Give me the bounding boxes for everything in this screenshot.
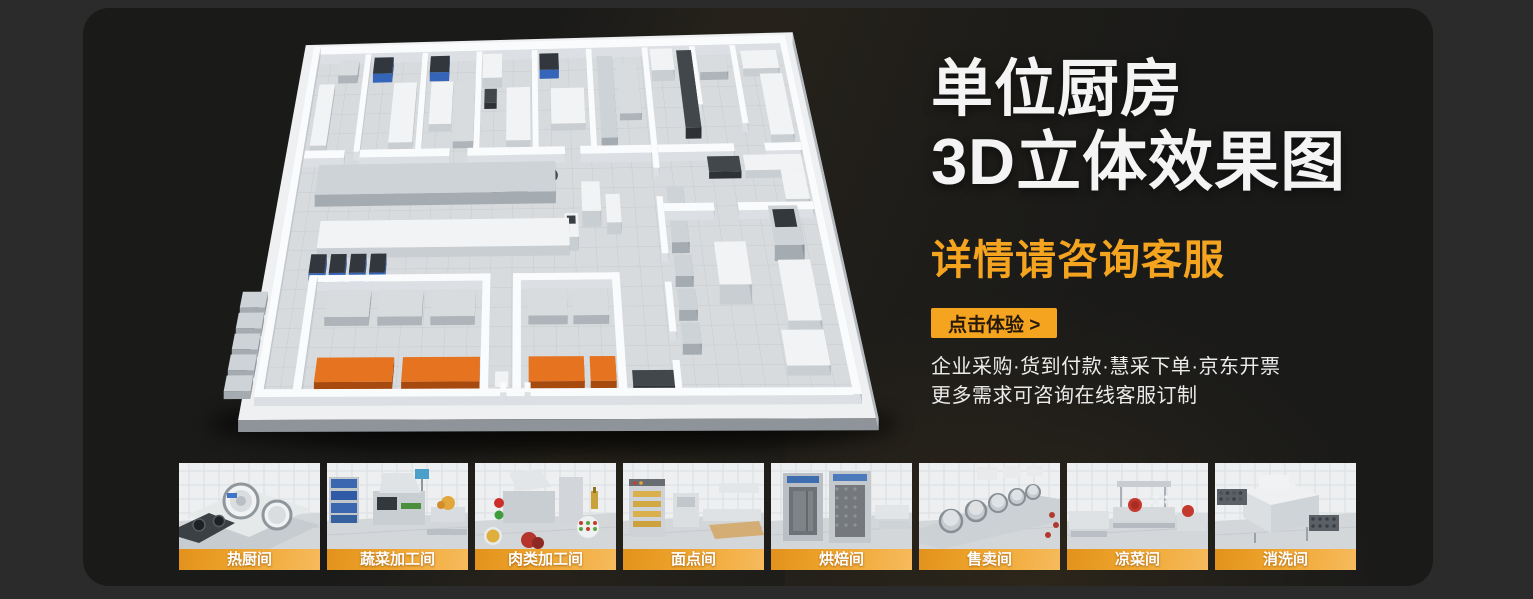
gallery-item-label: 售卖间 bbox=[919, 549, 1060, 570]
gallery-item-label: 烘焙间 bbox=[771, 549, 912, 570]
gallery-item-6[interactable]: 售卖间 bbox=[919, 463, 1060, 570]
gallery-item-label: 消洗间 bbox=[1215, 549, 1356, 570]
hero-note-line2: 更多需求可咨询在线客服订制 bbox=[931, 384, 1411, 408]
hero-text-block: 单位厨房 3D立体效果图 详情请咨询客服 点击体验 > 企业采购·货到付款·慧采… bbox=[931, 54, 1411, 408]
cta-button[interactable]: 点击体验 > bbox=[931, 308, 1057, 338]
gallery-item-label: 肉类加工间 bbox=[475, 549, 616, 570]
hero-title-line2: 3D立体效果图 bbox=[931, 126, 1411, 198]
room-gallery: 热厨间蔬菜加工间肉类加工间面点间烘焙间售卖间凉菜间消洗间 bbox=[179, 463, 1433, 570]
meat-processing-thumbnail bbox=[475, 463, 616, 549]
gallery-item-1[interactable]: 热厨间 bbox=[179, 463, 320, 570]
baking-room-thumbnail bbox=[771, 463, 912, 549]
banner-panel: 单位厨房 3D立体效果图 详情请咨询客服 点击体验 > 企业采购·货到付款·慧采… bbox=[83, 8, 1433, 586]
hero-title-line1: 单位厨房 bbox=[931, 54, 1411, 126]
serving-room-thumbnail bbox=[919, 463, 1060, 549]
page-background: 单位厨房 3D立体效果图 详情请咨询客服 点击体验 > 企业采购·货到付款·慧采… bbox=[0, 0, 1533, 599]
gallery-item-label: 蔬菜加工间 bbox=[327, 549, 468, 570]
gallery-item-label: 凉菜间 bbox=[1067, 549, 1208, 570]
gallery-item-label: 热厨间 bbox=[179, 549, 320, 570]
gallery-item-5[interactable]: 烘焙间 bbox=[771, 463, 912, 570]
gallery-item-8[interactable]: 消洗间 bbox=[1215, 463, 1356, 570]
pastry-room-thumbnail bbox=[623, 463, 764, 549]
hero-subtitle: 详情请咨询客服 bbox=[931, 236, 1411, 284]
hot-kitchen-thumbnail bbox=[179, 463, 320, 549]
gallery-item-2[interactable]: 蔬菜加工间 bbox=[327, 463, 468, 570]
cold-dish-room-thumbnail bbox=[1067, 463, 1208, 549]
gallery-item-7[interactable]: 凉菜间 bbox=[1067, 463, 1208, 570]
hero-note-line1: 企业采购·货到付款·慧采下单·京东开票 bbox=[931, 355, 1411, 379]
dishwashing-room-thumbnail bbox=[1215, 463, 1356, 549]
vegetable-processing-thumbnail bbox=[327, 463, 468, 549]
gallery-item-label: 面点间 bbox=[623, 549, 764, 570]
gallery-item-4[interactable]: 面点间 bbox=[623, 463, 764, 570]
gallery-item-3[interactable]: 肉类加工间 bbox=[475, 463, 616, 570]
